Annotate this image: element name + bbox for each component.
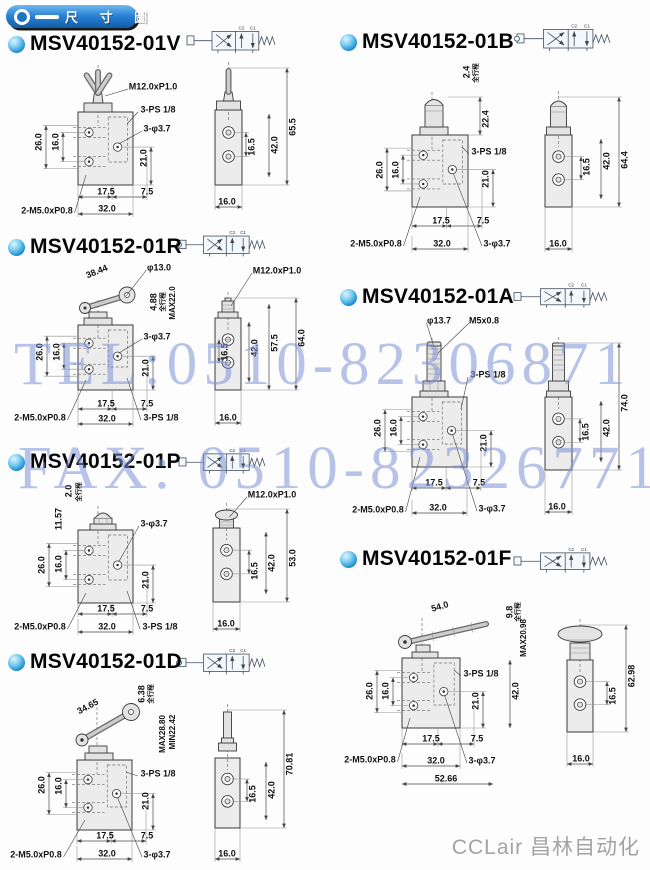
section-bullet-icon [8,654,25,671]
section-01D-drawing: C2C134.656.38全行程MAX28.80MIN22.423-PS 1/8… [10,648,294,862]
section-head-01p: MSV40152-01P [8,451,181,473]
dim-label: 7.5 [477,215,490,225]
section-head-01d: MSV40152-01D [8,651,182,673]
dim-label: 70.81 [284,753,294,776]
dim-label: 16.0 [50,133,60,151]
dim-label: 3-PS 1/8 [470,369,505,379]
dim-label: 32.0 [98,413,116,423]
dim-label: 26.0 [36,776,46,794]
dim-label: 42.0 [266,781,276,799]
symbol-port-label: C1 [240,648,246,653]
dim-label: 11.57 [53,508,63,530]
section-head-01r: MSV40152-01R [8,236,182,258]
section-bullet-icon [8,36,25,53]
symbol-port-label: C1 [240,230,246,235]
dim-label: 21.0 [470,692,480,710]
dim-label: 26.0 [33,133,43,151]
symbol-port-label: C1 [240,448,246,453]
dim-label: M5x0.8 [469,315,499,325]
dim-label: 7.5 [471,733,484,743]
dim-label: 3-PS 1/8 [140,768,175,778]
dim-label: 32.0 [427,755,445,765]
section-bullet-icon [340,34,357,51]
dim-label: 16.5 [247,785,257,803]
dim-label: 16.5 [219,343,229,361]
dim-label: 17.5 [97,398,115,408]
dim-label: 64.4 [619,151,629,169]
section-head-01a: MSV40152-01A [340,286,514,308]
dim-label: 32.0 [98,621,116,631]
dim-label: 74.0 [619,394,629,412]
dim-label: 32.0 [433,238,451,248]
dim-label: 26.0 [36,556,46,574]
dim-label: 42.0 [601,419,611,437]
catalog-page: C2C1M12.0xP1.03-PS 1/83-φ3.726.016.021.0… [0,0,650,870]
dim-label: 42.0 [269,136,279,154]
dim-label: 16.0 [53,777,63,795]
dim-label: 16.0 [217,618,235,628]
dim-label: 7.5 [473,477,486,487]
dim-label: 17.5 [96,830,114,840]
dim-label: 16.5 [246,138,256,156]
dim-label: 7.5 [141,398,154,408]
dim-label: 16.0 [51,343,61,361]
dim-label: 17.5 [97,603,115,613]
dim-label: 21.0 [478,434,488,452]
symbol-port-label: C2 [568,283,574,288]
symbol-port-label: C2 [239,25,245,30]
symbol-port-label: C2 [229,230,235,235]
dim-label: 6.38 [136,685,146,703]
section-01F-drawing: C2C154.09.8全行程MAX20.983-PS 1/826.016.021… [344,547,636,784]
dim-label: 52.66 [435,773,458,783]
section-bullet-icon [340,551,357,568]
header-dash-icon [35,15,59,19]
dim-label: 22.4 [480,110,490,128]
dim-label: 38.44 [84,263,109,281]
dim-label: 32.0 [429,502,447,512]
dim-label: MIN22.42 [168,714,177,749]
symbol-port-label: C2 [568,547,574,552]
dim-label: 16.5 [607,687,617,705]
dim-label: 17.5 [422,733,440,743]
dim-label: MAX20.98 [519,619,528,657]
dim-label: 全行程 [158,292,167,313]
dim-label: 42.0 [510,682,520,700]
dim-label: 16.0 [549,238,567,248]
dim-label: 26.0 [372,419,382,437]
dim-label: 全行程 [74,482,83,503]
dim-label: 2-M5.0xP0.8 [350,238,402,248]
dimension-drawings: C2C1M12.0xP1.03-PS 1/83-φ3.726.016.021.0… [0,0,650,870]
page-title: 尺 寸 圖 [65,7,156,26]
symbol-port-label: C1 [581,283,587,288]
dim-label: 16.5 [249,562,259,580]
brand-text: CCLair 昌林自动化 [452,831,640,861]
page-header: 尺 寸 圖 [6,5,137,28]
dim-label: 3-PS 1/8 [463,668,498,678]
section-title-01v: MSV40152-01V [30,32,181,56]
dim-label: 7.5 [141,830,154,840]
symbol-port-label: C2 [229,648,235,653]
dim-label: MAX22.0 [168,286,177,320]
dim-label: 42.0 [249,339,259,357]
dim-label: 16.0 [53,555,63,573]
section-bullet-icon [8,454,25,471]
dim-label: 3-PS 1/8 [140,104,175,114]
section-bullet-icon [340,289,357,306]
dim-label: 3-φ3.7 [144,849,171,859]
dim-label: MAX28.80 [158,715,167,753]
dim-label: 54.0 [430,599,450,613]
section-title-01p: MSV40152-01P [30,450,181,474]
dim-label: 3-PS 1/8 [142,621,177,631]
dim-label: 64.0 [296,329,306,347]
dim-label: 2-M5.0xP0.8 [352,504,404,514]
dim-label: 全行程 [146,684,155,705]
header-dot-icon [14,9,30,25]
dim-label: 65.5 [287,118,297,136]
dim-label: 3-φ3.7 [144,331,171,341]
dim-label: 3-φ3.7 [144,123,171,133]
dim-label: 62.98 [626,665,636,688]
symbol-port-label: C1 [250,25,256,30]
dim-label: M12.0xP1.0 [253,265,302,275]
section-head-01v: MSV40152-01V [8,33,181,55]
dim-label: 42.0 [266,554,276,572]
dim-label: 16.0 [390,161,400,179]
section-01R-drawing: C2C138.44φ13.0M12.0xP1.04.88全行程MAX22.026… [14,230,306,427]
symbol-port-label: C2 [229,448,235,453]
dim-label: 16.0 [548,501,566,511]
dim-label: 16.0 [219,412,237,422]
dim-label: 16.0 [572,753,590,763]
section-01A-drawing: C2C1φ13.7M5x0.83-PS 1/826.016.021.017.57… [352,283,629,516]
symbol-port-label: C2 [571,23,577,28]
symbol-port-label: C1 [584,23,590,28]
dim-label: 7.5 [141,603,154,613]
dim-label: 16.0 [218,848,236,858]
dim-label: φ13.0 [147,262,171,272]
section-title-01b: MSV40152-01B [362,30,514,54]
dim-label: M12.0xP1.0 [248,489,297,499]
section-title-01f: MSV40152-01F [362,547,511,571]
dim-label: 16.0 [380,682,390,700]
dim-label: 3-PS 1/8 [471,146,506,156]
dim-label: 3-φ3.7 [469,755,496,765]
dim-label: 21.0 [140,359,150,377]
dim-label: 17.5 [97,186,115,196]
dim-label: 全行程 [471,63,480,84]
section-title-01r: MSV40152-01R [30,235,182,259]
section-head-01b: MSV40152-01B [340,31,514,53]
dim-label: 2-M5.0xP0.8 [21,205,73,215]
dim-label: 16.0 [388,419,398,437]
section-01B-drawing: C2C12.4全行程22.43-PS 1/826.016.021.017.57.… [350,23,629,252]
dim-label: 26.0 [34,343,44,361]
dim-label: 26.0 [364,682,374,700]
dim-label: 32.0 [98,848,116,858]
dim-label: 3-φ3.7 [484,238,511,248]
dim-label: 3-φ3.7 [479,503,506,513]
dim-label: 16.5 [580,423,590,441]
dim-label: 2.0 [63,485,73,498]
dim-label: 2-M5.0xP0.8 [14,412,66,422]
dim-label: M12.0xP1.0 [129,81,178,91]
symbol-port-label: C1 [581,547,587,552]
dim-label: 57.5 [269,334,279,352]
section-head-01f: MSV40152-01F [340,548,511,570]
dim-label: 2.4 [461,66,471,79]
dim-label: 21.0 [140,792,150,810]
dim-label: 2-M5.0xP0.8 [14,621,66,631]
dim-label: 16.0 [218,196,236,206]
section-title-01d: MSV40152-01D [30,650,182,674]
dim-label: 42.0 [601,152,611,170]
dim-label: 32.0 [98,203,116,213]
section-bullet-icon [8,239,25,256]
dim-label: 2-M5.0xP0.8 [344,754,396,764]
dim-label: 2-M5.0xP0.8 [10,849,62,859]
dim-label: 7.5 [141,186,154,196]
dim-label: 17.5 [432,215,450,225]
dim-label: 17.5 [425,477,443,487]
dim-label: 3-φ3.7 [141,518,168,528]
section-01P-drawing: C2C12.0全行程11.573-φ3.7M12.0xP1.026.016.02… [14,448,297,635]
dim-label: 26.0 [374,161,384,179]
dim-label: 4.88 [148,293,158,311]
dim-label: 16.5 [581,158,591,176]
dim-label: φ13.7 [427,315,451,325]
dim-label: 9.8 [504,606,514,619]
dim-label: 3-PS 1/8 [143,412,178,422]
dim-label: 34.65 [75,697,100,716]
section-title-01a: MSV40152-01A [362,285,514,309]
dim-label: 53.0 [287,549,297,567]
dim-label: 21.0 [140,571,150,589]
